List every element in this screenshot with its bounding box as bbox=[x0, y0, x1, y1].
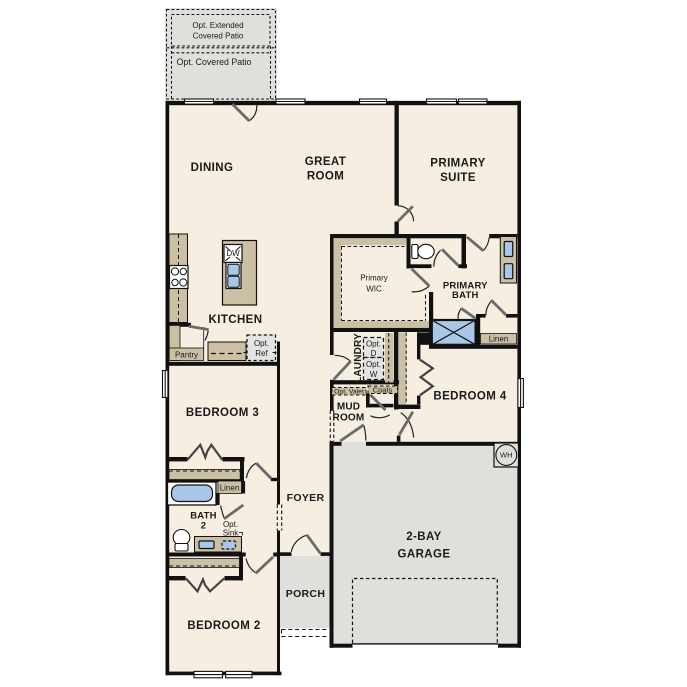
svg-text:MUD: MUD bbox=[337, 402, 360, 413]
svg-text:Covered Patio: Covered Patio bbox=[193, 32, 244, 41]
svg-text:BEDROOM 3: BEDROOM 3 bbox=[186, 407, 259, 419]
svg-text:WH: WH bbox=[500, 451, 513, 460]
svg-text:Opt.: Opt. bbox=[366, 360, 381, 369]
svg-text:DINING: DINING bbox=[191, 162, 234, 174]
svg-text:Ref: Ref bbox=[255, 349, 268, 358]
svg-text:BATH: BATH bbox=[452, 290, 478, 301]
svg-text:GARAGE: GARAGE bbox=[398, 549, 451, 561]
svg-text:Opt.: Opt. bbox=[366, 340, 381, 349]
svg-text:D: D bbox=[371, 349, 377, 358]
svg-text:ROOM: ROOM bbox=[333, 413, 365, 424]
svg-text:PORCH: PORCH bbox=[286, 588, 325, 600]
svg-text:W: W bbox=[370, 370, 378, 379]
svg-text:BEDROOM 2: BEDROOM 2 bbox=[187, 620, 260, 632]
svg-text:Opt. Covered Patio: Opt. Covered Patio bbox=[177, 57, 252, 67]
svg-text:KITCHEN: KITCHEN bbox=[209, 314, 263, 326]
svg-text:Linen: Linen bbox=[220, 484, 240, 493]
svg-text:DW: DW bbox=[226, 249, 240, 258]
svg-text:Primary: Primary bbox=[360, 274, 388, 283]
svg-text:SUITE: SUITE bbox=[440, 172, 476, 184]
svg-text:FOYER: FOYER bbox=[287, 492, 325, 504]
svg-text:2: 2 bbox=[201, 521, 206, 532]
svg-text:Opt. Valet: Opt. Valet bbox=[334, 389, 364, 396]
svg-text:Opt. Extended: Opt. Extended bbox=[192, 21, 243, 30]
svg-text:Coats: Coats bbox=[373, 385, 393, 394]
svg-text:2-BAY: 2-BAY bbox=[406, 531, 441, 543]
svg-text:BEDROOM 4: BEDROOM 4 bbox=[433, 391, 506, 403]
svg-text:GREAT: GREAT bbox=[305, 156, 346, 168]
svg-text:PRIMARY: PRIMARY bbox=[430, 158, 485, 170]
svg-text:WIC: WIC bbox=[366, 285, 382, 294]
svg-text:ROOM: ROOM bbox=[307, 171, 344, 183]
svg-text:Pantry: Pantry bbox=[175, 351, 198, 360]
svg-text:Opt.: Opt. bbox=[254, 339, 269, 348]
svg-text:Linen: Linen bbox=[489, 335, 509, 344]
svg-text:LAUNDRY: LAUNDRY bbox=[353, 333, 364, 383]
svg-text:Sink: Sink bbox=[223, 529, 240, 538]
